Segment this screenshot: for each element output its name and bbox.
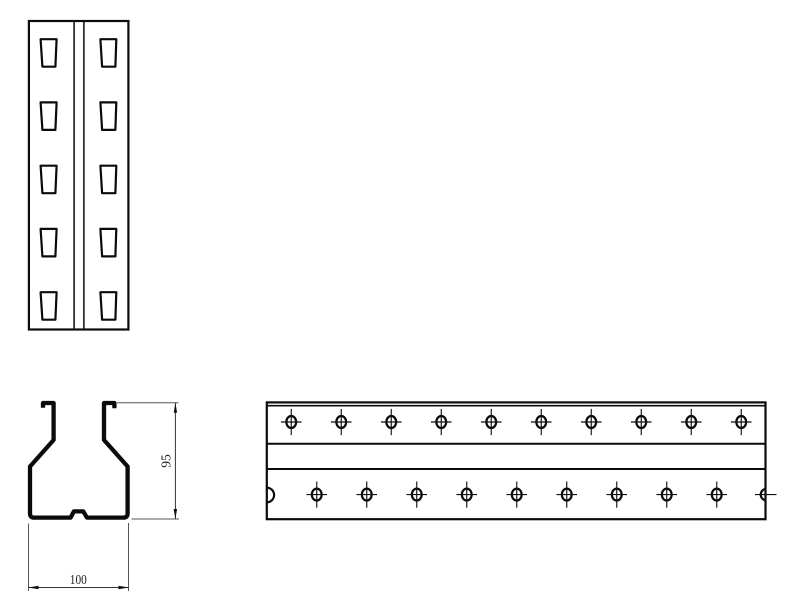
svg-text:95: 95 bbox=[159, 454, 174, 468]
svg-text:100: 100 bbox=[70, 572, 87, 587]
